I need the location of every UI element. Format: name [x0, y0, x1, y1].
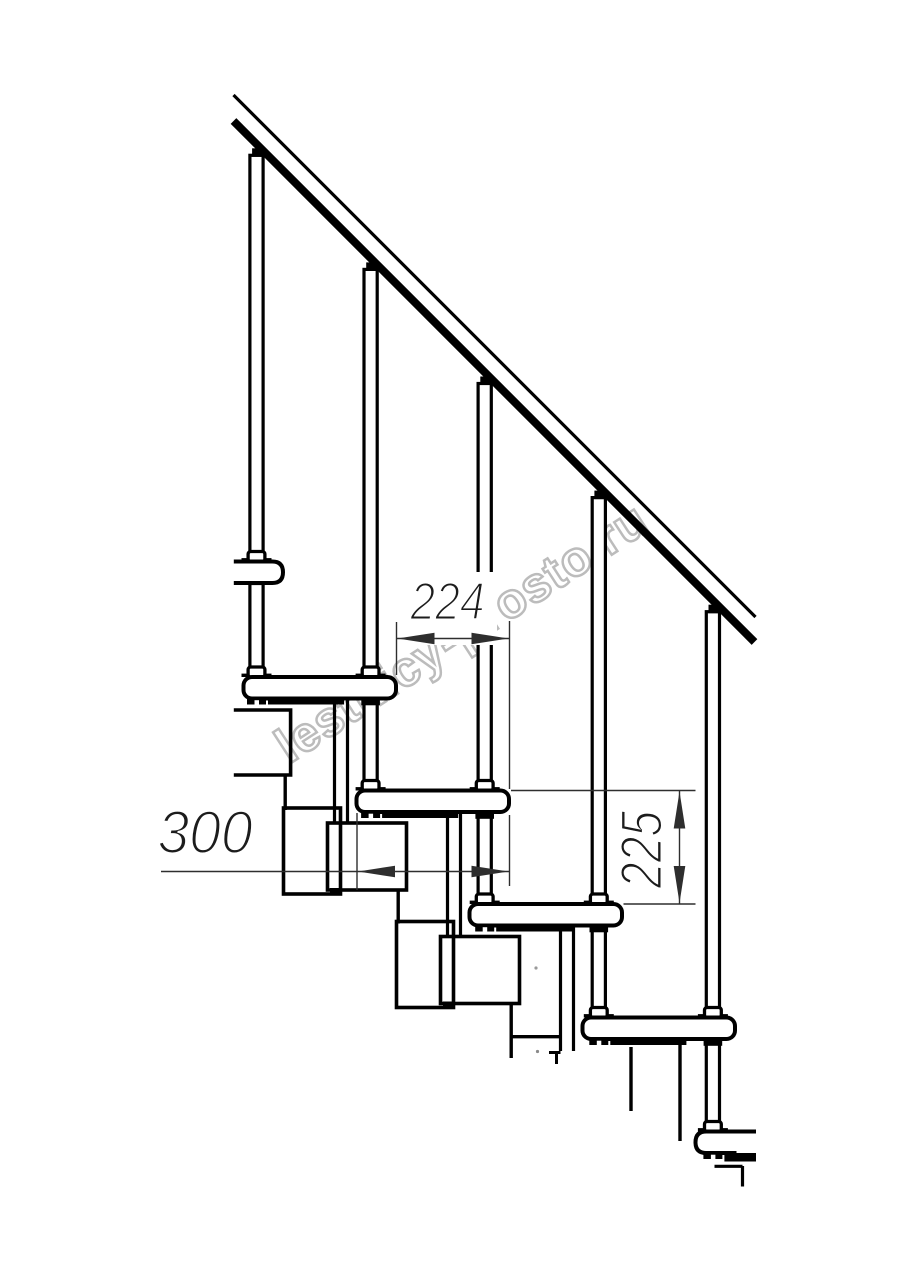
- svg-text:300: 300: [157, 800, 253, 867]
- svg-text:224: 224: [409, 573, 484, 631]
- svg-text:225: 225: [610, 810, 675, 889]
